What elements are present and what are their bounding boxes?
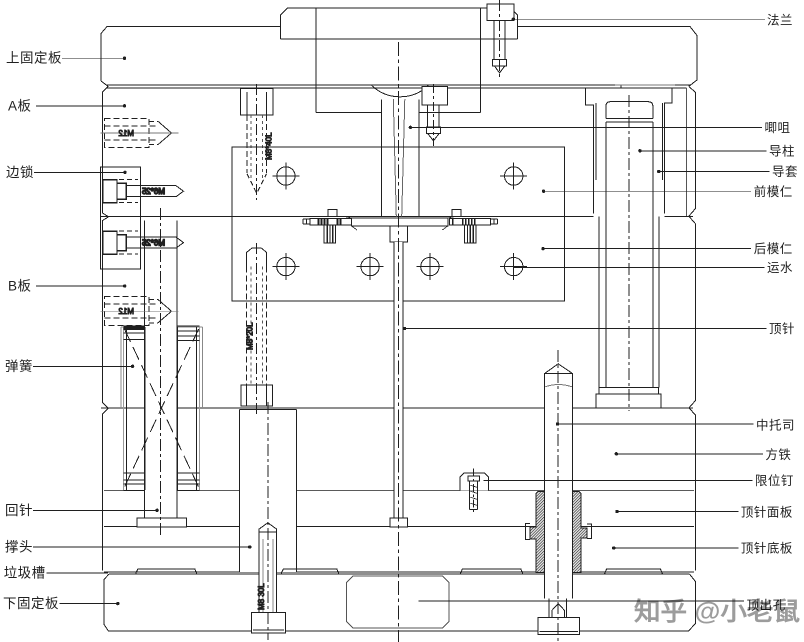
svg-text:垃圾槽: 垃圾槽 <box>4 566 46 581</box>
svg-text:M8*20L: M8*20L <box>246 322 255 350</box>
svg-text:前模仁: 前模仁 <box>754 184 793 199</box>
svg-text:M12: M12 <box>118 129 134 138</box>
svg-text:法兰: 法兰 <box>767 14 793 28</box>
svg-text:M12: M12 <box>118 307 134 316</box>
svg-text:M6*25: M6*25 <box>141 187 165 196</box>
svg-text:中托司: 中托司 <box>756 418 795 433</box>
svg-text:M8*40L: M8*40L <box>265 132 274 160</box>
svg-text:M6*25: M6*25 <box>141 238 165 247</box>
svg-text:弹簧: 弹簧 <box>5 359 33 374</box>
svg-text:B板: B板 <box>8 279 32 294</box>
svg-text:导套: 导套 <box>772 164 798 179</box>
svg-text:顶针: 顶针 <box>769 321 795 336</box>
svg-text:运水: 运水 <box>767 261 793 275</box>
svg-text:撑头: 撑头 <box>5 540 33 555</box>
svg-text:知乎 @小老鼠: 知乎 @小老鼠 <box>634 598 800 626</box>
svg-text:限位钉: 限位钉 <box>755 473 794 488</box>
svg-text:顶针面板: 顶针面板 <box>741 505 793 520</box>
svg-text:后模仁: 后模仁 <box>754 242 793 256</box>
svg-text:唧咀: 唧咀 <box>765 121 791 135</box>
svg-text:上固定板: 上固定板 <box>6 51 62 66</box>
svg-text:导柱: 导柱 <box>769 143 795 158</box>
svg-text:方铁: 方铁 <box>765 447 791 462</box>
svg-text:回针: 回针 <box>5 503 33 518</box>
svg-text:M8 30L: M8 30L <box>257 583 266 610</box>
svg-text:顶针底板: 顶针底板 <box>741 541 793 556</box>
svg-text:A板: A板 <box>8 99 32 114</box>
svg-text:下固定板: 下固定板 <box>3 596 59 611</box>
svg-text:边锁: 边锁 <box>6 165 34 180</box>
